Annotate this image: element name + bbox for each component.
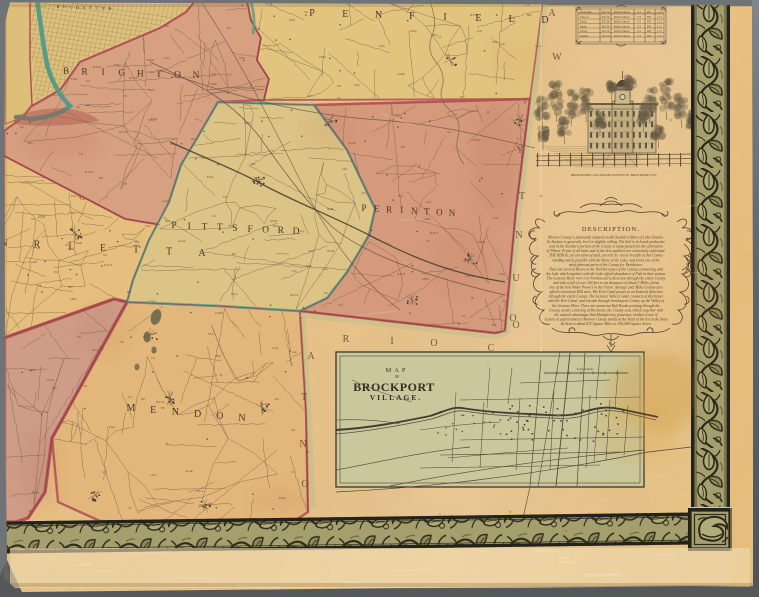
svg-text:S.Hall: S.Hall — [424, 218, 431, 221]
svg-text:D.Coe: D.Coe — [32, 491, 40, 494]
svg-text:E: E — [100, 243, 106, 254]
svg-text:M.E.Ch: M.E.Ch — [85, 171, 94, 174]
svg-text:A: A — [198, 248, 206, 259]
svg-text:F: F — [248, 225, 253, 235]
svg-text:84,714: 84,714 — [602, 11, 610, 14]
svg-text:P.O: P.O — [54, 271, 58, 274]
svg-text:J.Smith: J.Smith — [472, 139, 481, 142]
svg-text:most pleasant parts of the Cou: most pleasant parts of the County for Re… — [569, 263, 643, 267]
svg-text:L.Gay: L.Gay — [163, 57, 170, 60]
svg-text:Mill: Mill — [68, 286, 73, 289]
svg-text:E: E — [150, 405, 156, 416]
svg-text:P.O: P.O — [275, 398, 279, 401]
svg-text:H.P: H.P — [232, 253, 237, 256]
svg-text:M: M — [127, 403, 136, 414]
svg-text:E: E — [374, 204, 380, 214]
svg-text:E.Day: E.Day — [207, 176, 214, 179]
svg-text:Wm.H: Wm.H — [270, 220, 277, 223]
svg-text:E.Day: E.Day — [279, 497, 286, 500]
svg-text:O: O — [262, 226, 269, 236]
svg-text:S.S: S.S — [28, 510, 32, 513]
svg-text:S.S: S.S — [426, 240, 430, 243]
svg-text:H.P: H.P — [191, 138, 196, 141]
svg-text:Public Schools: Public Schools — [614, 16, 630, 19]
svg-text:Cem: Cem — [493, 217, 498, 220]
svg-text:F: F — [409, 11, 415, 22]
svg-text:I: I — [188, 222, 191, 232]
svg-text:Y: Y — [516, 145, 523, 156]
svg-text:T.B: T.B — [123, 95, 127, 98]
svg-text:I: I — [68, 241, 71, 252]
svg-text:T: T — [217, 223, 223, 233]
svg-text:E.Day: E.Day — [71, 78, 78, 81]
svg-text:T.B: T.B — [337, 85, 341, 88]
svg-text:H.P: H.P — [401, 146, 406, 149]
svg-text:S.S: S.S — [306, 451, 310, 454]
svg-text:Value of: Value of — [580, 16, 589, 19]
svg-text:E.Day: E.Day — [151, 118, 158, 121]
svg-text:E.Day: E.Day — [109, 426, 116, 429]
svg-text:P.O: P.O — [362, 192, 366, 195]
svg-text:Mill: Mill — [52, 387, 57, 390]
svg-text:J.Smith: J.Smith — [209, 83, 218, 86]
svg-text:I.Hart: I.Hart — [492, 41, 498, 44]
svg-text:DESCRIPTION.: DESCRIPTION. — [582, 226, 640, 233]
svg-text:J.Ray: J.Ray — [354, 84, 361, 87]
svg-text:A.Lusk: A.Lusk — [185, 470, 193, 473]
svg-text:T: T — [301, 392, 307, 403]
svg-text:Public Schools: Public Schools — [614, 11, 630, 14]
svg-text:Public Schools: Public Schools — [614, 35, 630, 38]
svg-text:T.B: T.B — [120, 341, 124, 344]
svg-text:D: D — [293, 227, 300, 237]
svg-text:M.E.Ch: M.E.Ch — [156, 401, 165, 404]
svg-text:P.O: P.O — [324, 292, 328, 295]
svg-text:Cem: Cem — [170, 143, 175, 146]
svg-text:O: O — [174, 70, 181, 80]
svg-text:J.Ray: J.Ray — [463, 260, 470, 263]
svg-text:E.Day: E.Day — [148, 89, 155, 92]
svg-text:Dwell: Dwell — [580, 21, 587, 24]
svg-text:J.Ray: J.Ray — [322, 268, 329, 271]
svg-text:U: U — [512, 273, 520, 284]
svg-text:H.P: H.P — [33, 261, 38, 264]
svg-text:Scale of Rods: Scale of Rods — [577, 367, 594, 371]
svg-text:Public Schools: Public Schools — [614, 21, 630, 24]
svg-text:D.Coe: D.Coe — [197, 490, 205, 493]
svg-text:A: A — [307, 351, 315, 362]
svg-text:Farms: Farms — [580, 25, 586, 28]
svg-text:I.Hart: I.Hart — [215, 355, 221, 358]
svg-text:S: S — [232, 224, 237, 234]
svg-text:P: P — [309, 8, 315, 19]
svg-text:Cem: Cem — [211, 73, 216, 76]
svg-text:S.Hall: S.Hall — [70, 298, 77, 301]
svg-text:D.Coe: D.Coe — [231, 293, 239, 296]
svg-text:T: T — [166, 246, 172, 257]
svg-text:I: I — [102, 68, 105, 78]
svg-text:R: R — [386, 204, 392, 214]
svg-text:H.P: H.P — [165, 25, 170, 28]
svg-text:N: N — [411, 206, 418, 216]
svg-text:OF: OF — [395, 375, 400, 379]
svg-text:J.Smith: J.Smith — [147, 71, 156, 74]
svg-text:1,13: 1,13 — [657, 35, 662, 38]
svg-text:O: O — [430, 338, 437, 349]
svg-text:S.Hall: S.Hall — [201, 157, 208, 160]
svg-text:G: G — [118, 69, 125, 79]
svg-text:S.S: S.S — [291, 471, 295, 474]
svg-text:J.Ray: J.Ray — [379, 45, 386, 48]
svg-text:Its Surface is generally level: Its Surface is generally level or slight… — [546, 240, 665, 244]
svg-text:J.Ray: J.Ray — [308, 250, 315, 253]
svg-text:Mill: Mill — [251, 163, 256, 166]
svg-text:J.Smith: J.Smith — [215, 312, 224, 315]
svg-text:E.Day: E.Day — [431, 34, 438, 37]
svg-text:M.E.Ch: M.E.Ch — [397, 273, 406, 276]
svg-text:M.E.Ch: M.E.Ch — [119, 131, 128, 134]
svg-text:D.Coe: D.Coe — [92, 349, 100, 352]
svg-text:L.Gay: L.Gay — [272, 347, 279, 350]
svg-text:N: N — [449, 208, 456, 218]
svg-text:Cem: Cem — [426, 201, 431, 204]
svg-text:G.W: G.W — [308, 95, 314, 98]
svg-text:R: R — [343, 334, 350, 345]
svg-text:BROCKPORT: BROCKPORT — [353, 380, 434, 394]
svg-text:84,714: 84,714 — [602, 16, 610, 19]
svg-text:Public Schools: Public Schools — [614, 30, 630, 33]
svg-text:M.E.Ch: M.E.Ch — [465, 275, 474, 278]
svg-text:A point of supereminence Monro: A point of supereminence Monroe County s… — [543, 317, 668, 321]
svg-text:J.Smith: J.Smith — [477, 241, 486, 244]
svg-text:N: N — [375, 10, 382, 21]
svg-text:T: T — [156, 70, 162, 80]
svg-text:H.P: H.P — [460, 96, 465, 99]
svg-text:the Lake which together with t: the Lake which together with the Lake af… — [546, 272, 666, 276]
svg-text:S.S: S.S — [102, 471, 106, 474]
svg-text:M.E.Ch: M.E.Ch — [290, 294, 299, 297]
svg-text:I: I — [390, 336, 393, 347]
svg-text:Wm.H: Wm.H — [38, 216, 45, 219]
svg-text:I.Hart: I.Hart — [306, 265, 312, 268]
svg-text:T.B: T.B — [79, 153, 83, 156]
svg-text:Populat: Populat — [580, 35, 588, 38]
svg-text:M.E.Ch: M.E.Ch — [71, 195, 80, 198]
svg-text:84,714: 84,714 — [602, 25, 610, 28]
svg-text:P.O: P.O — [20, 126, 24, 129]
svg-text:M.E.Ch: M.E.Ch — [104, 264, 113, 267]
svg-text:I.Hart: I.Hart — [239, 57, 245, 60]
svg-text:O: O — [509, 313, 516, 324]
svg-text:R: R — [34, 240, 41, 251]
svg-text:of Wheat. Fruits of all kinds: of Wheat. Fruits of all kinds and of the… — [547, 249, 666, 253]
svg-text:J.Smith: J.Smith — [74, 242, 83, 245]
svg-text:P.O: P.O — [227, 27, 231, 30]
svg-text:S.Hall: S.Hall — [319, 56, 326, 59]
svg-text:Mill: Mill — [398, 195, 403, 198]
svg-text:1,13: 1,13 — [657, 25, 662, 28]
svg-text:Mill: Mill — [327, 208, 332, 211]
svg-text:H: H — [137, 69, 144, 79]
svg-text:A.Lusk: A.Lusk — [348, 142, 356, 145]
svg-text:Mill: Mill — [527, 14, 532, 17]
svg-text:E: E — [342, 9, 348, 20]
svg-text:S.S: S.S — [128, 396, 132, 399]
svg-text:1,13: 1,13 — [657, 21, 662, 24]
svg-text:N: N — [299, 439, 306, 450]
svg-text:84,714: 84,714 — [602, 21, 610, 24]
svg-text:G.W: G.W — [292, 270, 298, 273]
svg-text:B: B — [63, 67, 69, 77]
svg-text:L.Gay: L.Gay — [162, 200, 169, 203]
svg-text:G.W: G.W — [211, 215, 217, 218]
svg-text:O: O — [301, 479, 308, 490]
svg-text:Mill: Mill — [135, 241, 140, 244]
svg-text:O: O — [216, 411, 223, 422]
svg-text:I: I — [443, 12, 446, 23]
svg-text:D.Coe: D.Coe — [47, 379, 55, 382]
svg-text:A.Lusk: A.Lusk — [260, 403, 268, 406]
svg-text:L.Gay: L.Gay — [149, 300, 156, 303]
svg-text:S.Hall: S.Hall — [244, 122, 251, 125]
svg-text:L.Gay: L.Gay — [150, 474, 157, 477]
svg-text:P.O: P.O — [337, 97, 341, 100]
svg-text:J.Ray: J.Ray — [342, 168, 349, 171]
svg-text:R: R — [278, 226, 285, 236]
svg-text:G.W: G.W — [477, 30, 483, 33]
svg-text:The Genesee River runs in a No: The Genesee River runs in a Northwesterl… — [547, 277, 666, 281]
svg-text:O: O — [436, 207, 443, 217]
svg-text:E.Day: E.Day — [410, 30, 417, 33]
svg-text:L: L — [509, 14, 515, 25]
svg-text:A: A — [548, 8, 556, 19]
svg-text:J.Ray: J.Ray — [208, 333, 215, 336]
svg-text:T: T — [424, 207, 430, 217]
svg-text:N: N — [193, 71, 200, 81]
svg-text:the Genesee River. There are n: the Genesee River. There are numerous Ra… — [552, 304, 660, 308]
svg-text:N: N — [238, 413, 245, 424]
svg-text:H.P: H.P — [141, 398, 146, 401]
svg-text:Acres Impr: Acres Impr — [580, 11, 592, 14]
svg-text:P: P — [171, 221, 176, 231]
svg-text:1,13: 1,13 — [657, 11, 662, 14]
svg-text:T.B: T.B — [123, 183, 127, 186]
svg-text:I.Hart: I.Hart — [30, 369, 36, 372]
svg-text:E.Day: E.Day — [114, 64, 121, 67]
svg-text:Cem: Cem — [292, 351, 297, 354]
svg-text:and in the Southern portion of: and in the Southern portion of the Count… — [549, 245, 663, 249]
svg-text:T.B: T.B — [83, 385, 87, 388]
svg-text:Mill: Mill — [28, 142, 33, 145]
svg-text:T: T — [519, 191, 525, 202]
svg-text:1,13: 1,13 — [657, 16, 662, 19]
svg-text:1,13: 1,13 — [657, 30, 662, 33]
svg-text:H.P: H.P — [161, 407, 166, 410]
svg-text:W: W — [552, 52, 562, 63]
svg-text:T: T — [202, 223, 208, 233]
svg-text:H.P: H.P — [492, 324, 497, 327]
svg-text:J.Smith: J.Smith — [397, 73, 406, 76]
svg-text:School: School — [580, 30, 587, 33]
svg-text:J.Ray: J.Ray — [499, 273, 506, 276]
svg-text:S.S: S.S — [151, 357, 155, 360]
svg-text:J.Smith: J.Smith — [146, 59, 155, 62]
svg-text:T.B: T.B — [77, 336, 81, 339]
svg-text:M.E.Ch: M.E.Ch — [430, 232, 439, 235]
svg-text:S.S: S.S — [462, 315, 466, 318]
svg-text:84,714: 84,714 — [602, 30, 610, 33]
svg-text:Wm.H: Wm.H — [327, 250, 334, 253]
svg-text:T.B: T.B — [223, 196, 227, 199]
svg-text:R: R — [81, 68, 88, 78]
svg-text:T: T — [133, 245, 139, 256]
svg-text:J.Ray: J.Ray — [145, 225, 152, 228]
svg-text:Monroe County is pleasantly si: Monroe County is pleasantly situated on … — [547, 236, 664, 240]
svg-text:I: I — [400, 205, 403, 215]
svg-text:afford convenient Mill sites.: afford convenient Mill sites. The Erie C… — [549, 290, 662, 294]
svg-text:N: N — [172, 407, 179, 418]
svg-text:G.W: G.W — [338, 304, 344, 307]
svg-text:H.P: H.P — [99, 177, 104, 180]
svg-text:MAP: MAP — [385, 367, 408, 374]
svg-text:E: E — [475, 13, 481, 24]
svg-text:S.Hall: S.Hall — [393, 114, 400, 117]
svg-text:Cem: Cem — [80, 198, 85, 201]
svg-text:S.Hall: S.Hall — [422, 278, 429, 281]
svg-text:H.P: H.P — [127, 291, 132, 294]
svg-text:D: D — [194, 409, 201, 420]
svg-text:Public Schools: Public Schools — [614, 25, 630, 28]
svg-text:P: P — [361, 203, 366, 213]
svg-text:Mill: Mill — [165, 220, 170, 223]
svg-text:N: N — [515, 230, 522, 241]
svg-text:I.Hart: I.Hart — [289, 19, 295, 22]
svg-text:84,714: 84,714 — [602, 35, 610, 38]
svg-text:A.Lusk: A.Lusk — [178, 240, 186, 243]
svg-text:T.B: T.B — [291, 429, 295, 432]
